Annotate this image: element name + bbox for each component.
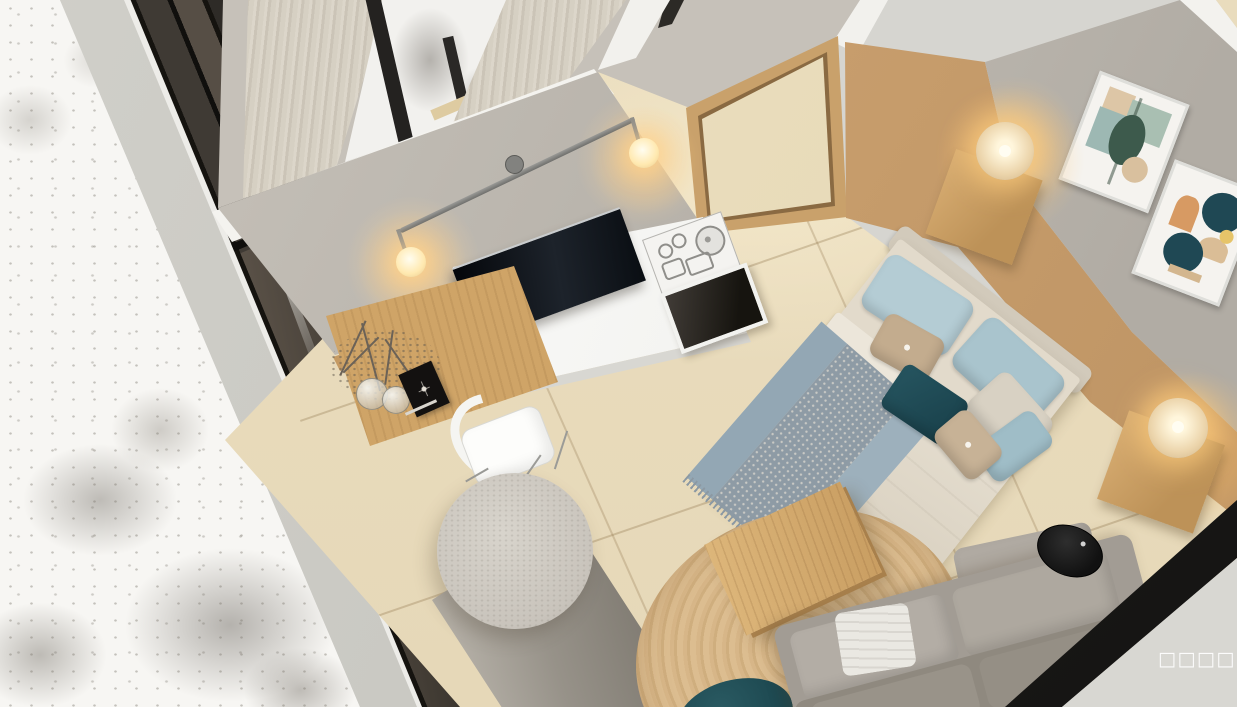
- bedroom-3d-render: □□□□□□□□: [0, 0, 1237, 707]
- watermark-text: □□□□□□□□: [1158, 648, 1237, 670]
- wall-lamp-bulb: [396, 247, 426, 277]
- lamp-glint: [1080, 541, 1087, 548]
- table-lamp-bulb: [1172, 421, 1184, 433]
- white-sofa-throw: [834, 602, 917, 677]
- book-cover-emblem: [414, 378, 434, 400]
- supply-box: [684, 251, 715, 277]
- plate: [660, 257, 687, 281]
- cylinder-armchair-top: [437, 473, 593, 629]
- art-shape: [1168, 192, 1203, 232]
- wall-lamp-pivot: [505, 155, 524, 174]
- table-lamp-bulb: [999, 145, 1011, 157]
- fabric-texture: [437, 473, 593, 629]
- wall-lamp-bulb: [629, 138, 659, 168]
